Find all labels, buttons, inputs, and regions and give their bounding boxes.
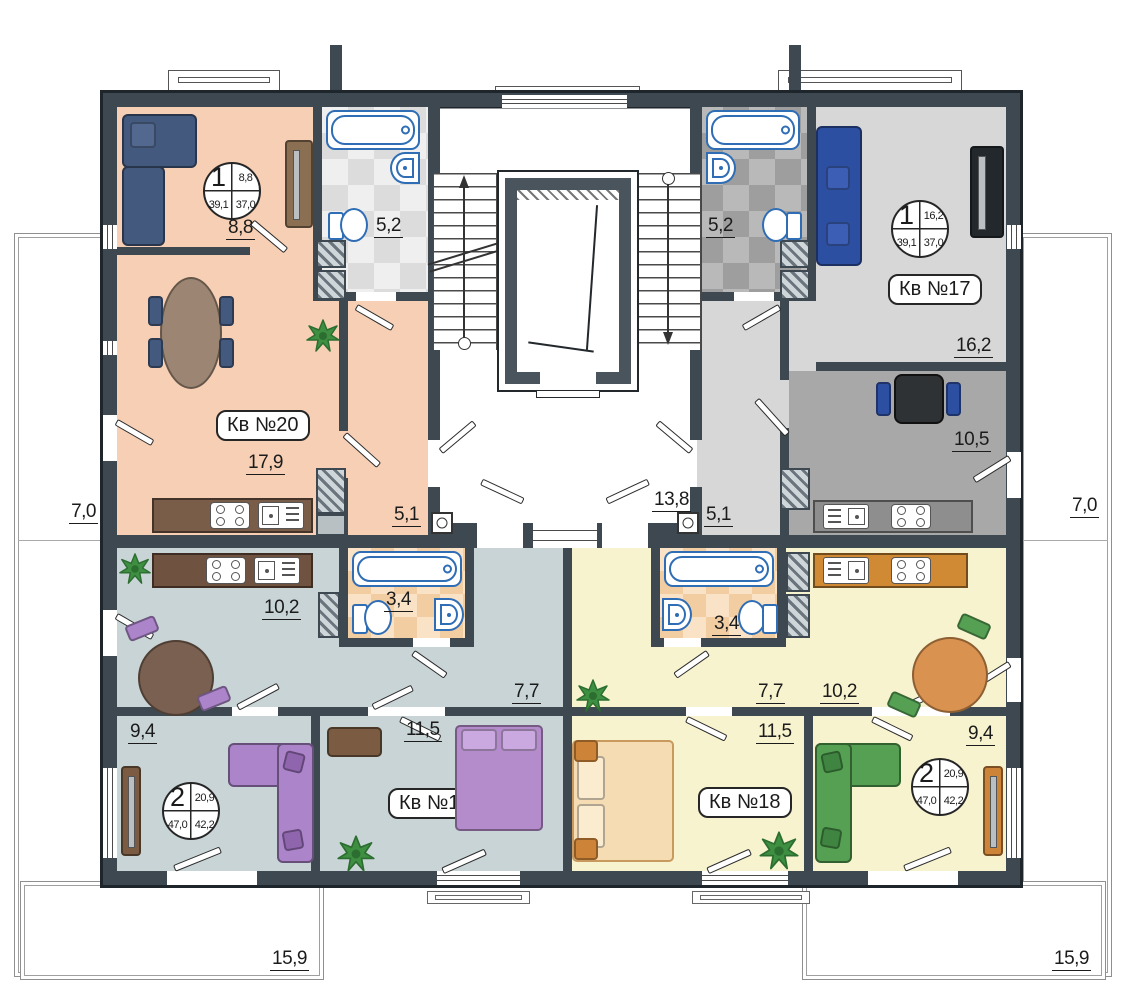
wall [339, 548, 348, 638]
area-label-bathroom: 5,2 [374, 216, 403, 238]
dresser [327, 727, 382, 757]
area-label-hallway: 5,1 [392, 505, 421, 527]
balcony-right: 7,0 [1019, 233, 1112, 977]
sink [706, 152, 736, 184]
total-area: 39,1 [897, 237, 916, 249]
wall [103, 535, 428, 548]
toilet [762, 604, 778, 634]
tv-screen [128, 776, 135, 848]
terrace-door-window [702, 871, 788, 885]
wall [780, 301, 789, 380]
sofa-cushion [826, 166, 850, 190]
bathtub [664, 551, 774, 587]
plant-icon [758, 830, 800, 872]
wall [465, 548, 474, 638]
wall [339, 638, 474, 647]
living-area: 37,0 [924, 237, 943, 249]
door-opening [686, 707, 732, 716]
rooms-count: 2 [919, 760, 934, 787]
living-area: 37,0 [236, 199, 255, 211]
plant-icon [575, 678, 611, 714]
duct-shaft [780, 270, 810, 300]
living-area: 42,2 [195, 819, 214, 831]
area-label-kitchen: 10,5 [952, 430, 991, 452]
window [103, 341, 117, 355]
balcony-right-outline [1023, 237, 1108, 973]
stove-icon [891, 504, 931, 529]
elevator-car [517, 190, 619, 372]
sofa [122, 166, 165, 246]
area-label-hallway: 7,7 [756, 682, 785, 704]
window [1007, 768, 1021, 858]
door-opening [368, 707, 445, 716]
apartment-info-circle-kv18: 2 20,9 47,0 42,2 [911, 758, 969, 816]
bathtub [706, 110, 800, 150]
apartment-tag-kv18: Кв №18 [698, 787, 792, 818]
plant-icon [118, 552, 152, 586]
window-sill [427, 891, 530, 904]
door-opening [356, 292, 396, 301]
duct-shaft [316, 468, 346, 514]
area-label-living: 17,9 [246, 453, 285, 475]
elevator-door-opening [540, 370, 596, 392]
room-area: 16,2 [924, 210, 943, 222]
kitchen-counter [813, 500, 973, 533]
riser-box [431, 512, 453, 534]
terrace-door-opening [167, 871, 257, 885]
sofa-cushion [820, 750, 844, 774]
rooms-count: 1 [899, 202, 914, 229]
terrace-door-window [437, 871, 520, 885]
kitchen-counter [152, 553, 313, 588]
kitchen-sink-icon [254, 557, 300, 584]
apartment-tag-kv17: Кв №17 [888, 274, 982, 305]
tv-screen [293, 150, 300, 220]
apartment-info-circle-kv17: 1 16,2 39,1 37,0 [891, 200, 949, 258]
balcony-right-area: 7,0 [1070, 496, 1099, 518]
area-label-room: 8,8 [226, 218, 255, 240]
chair [946, 382, 961, 416]
kitchen-sink-icon [823, 557, 869, 584]
staircase-flight-down [637, 173, 701, 350]
terrace-right: 15,9 [802, 881, 1106, 980]
area-label-bathroom: 5,2 [706, 216, 735, 238]
balcony-left: 7,0 [14, 233, 107, 977]
terrace-right-area: 15,9 [1052, 949, 1091, 971]
toilet-bowl [340, 208, 368, 242]
floor-plan: 7,0 7,0 15,9 15,9 [0, 0, 1124, 1000]
elevator-shaft-hatch [517, 190, 619, 200]
door-opening [413, 638, 450, 647]
toilet [786, 212, 802, 240]
wall [563, 548, 572, 871]
area-label-hallway: 5,1 [704, 505, 733, 527]
wall [816, 362, 1006, 371]
sink [662, 598, 692, 631]
area-label-bedroom2: 11,5 [404, 720, 442, 742]
wall [702, 535, 1020, 548]
entry-door-opening-kv18 [602, 523, 648, 548]
rooms-count: 1 [211, 164, 226, 191]
landing-window [533, 523, 597, 548]
sofa-cushion [574, 740, 598, 762]
area-label-bathroom: 3,4 [712, 614, 741, 636]
total-area: 47,0 [168, 819, 187, 831]
sink [434, 598, 464, 631]
door-opening [664, 638, 701, 647]
pillow [461, 729, 497, 751]
terrace-left-area: 15,9 [270, 949, 309, 971]
window [103, 768, 117, 858]
stair-direction-arrow-down [667, 182, 669, 334]
balcony-left-area: 7,0 [69, 502, 98, 524]
balcony-divider [1023, 540, 1108, 541]
wall [117, 247, 250, 255]
arrow-up-icon [459, 175, 469, 188]
chair [219, 296, 234, 326]
window [1007, 225, 1021, 249]
area-label-kitchen: 10,2 [262, 598, 301, 620]
area-label-bedroom2: 11,5 [756, 722, 794, 744]
living-area: 42,2 [944, 795, 963, 807]
room-area: 20,9 [195, 792, 214, 804]
kitchen-sink-icon [258, 502, 304, 529]
stair-arrow-start [662, 172, 675, 185]
sink [390, 152, 420, 184]
area-label-kitchen: 10,2 [820, 682, 859, 704]
sofa-cushion [574, 838, 598, 860]
elevator-door-sill [536, 390, 600, 398]
stair-arrow-start [458, 337, 471, 350]
entry-door-opening-kv19 [477, 523, 523, 548]
sofa-cushion [281, 828, 304, 851]
door-opening [734, 292, 774, 301]
chair [876, 382, 891, 416]
pillow [577, 756, 605, 800]
stairwell-window [502, 95, 627, 108]
rooms-count: 2 [170, 784, 185, 811]
plant-icon [305, 318, 341, 354]
total-area: 47,0 [917, 795, 936, 807]
apartment-info-circle-kv20: 1 8,8 39,1 37,0 [203, 162, 261, 220]
window-sill [692, 891, 810, 904]
terrace-door-opening [868, 871, 958, 885]
bathtub [352, 551, 462, 587]
duct-shaft [780, 240, 810, 268]
duct-shaft [786, 552, 810, 592]
area-label-bedroom1: 9,4 [128, 722, 157, 744]
area-label-bedroom1: 9,4 [966, 724, 995, 746]
area-label-hallway: 7,7 [512, 682, 541, 704]
area-label-living: 16,2 [954, 336, 993, 358]
bathtub [326, 110, 420, 150]
stove-icon [210, 502, 250, 529]
window [103, 225, 117, 249]
balcony-divider [18, 540, 103, 541]
sofa-cushion [826, 222, 850, 246]
stove-icon [891, 557, 931, 584]
room-area: 20,9 [944, 768, 963, 780]
apartment-tag-kv20: Кв №20 [216, 410, 310, 441]
sofa-cushion [819, 826, 842, 849]
sofa-cushion [130, 122, 156, 148]
riser-box [677, 512, 699, 534]
duct-shaft [786, 594, 810, 638]
kitchen-sink-icon [823, 504, 869, 529]
plant-icon [336, 834, 376, 874]
pillow [501, 729, 537, 751]
arrow-down-icon [663, 332, 673, 345]
chair [219, 338, 234, 368]
wall-stub [330, 45, 342, 97]
duct-shaft [318, 592, 340, 638]
balcony-left-outline [18, 237, 103, 973]
kitchen-counter [813, 553, 968, 588]
wall-stub [789, 45, 801, 97]
stair-direction-arrow-up [463, 186, 465, 338]
kitchen-table [894, 374, 944, 424]
chair [148, 296, 163, 326]
tv-screen [978, 156, 986, 230]
wall [651, 548, 660, 638]
wall [804, 716, 813, 871]
terrace-left: 15,9 [20, 881, 324, 980]
landing-area-label: 13,8 [652, 490, 691, 512]
tv [970, 146, 1004, 238]
kitchen-counter [152, 498, 313, 533]
dining-table [160, 277, 222, 389]
duct-shaft [316, 514, 346, 536]
wall [777, 548, 786, 638]
duct-shaft [316, 270, 346, 300]
apartment-info-circle-kv19: 2 20,9 47,0 42,2 [162, 782, 220, 840]
area-label-bathroom: 3,4 [384, 590, 413, 612]
chair [148, 338, 163, 368]
tv-screen [990, 776, 997, 848]
total-area: 39,1 [209, 199, 228, 211]
duct-shaft [780, 468, 810, 510]
duct-shaft [316, 240, 346, 268]
stove-icon [206, 557, 246, 584]
room-area: 8,8 [239, 172, 253, 184]
dining-table [912, 637, 988, 713]
